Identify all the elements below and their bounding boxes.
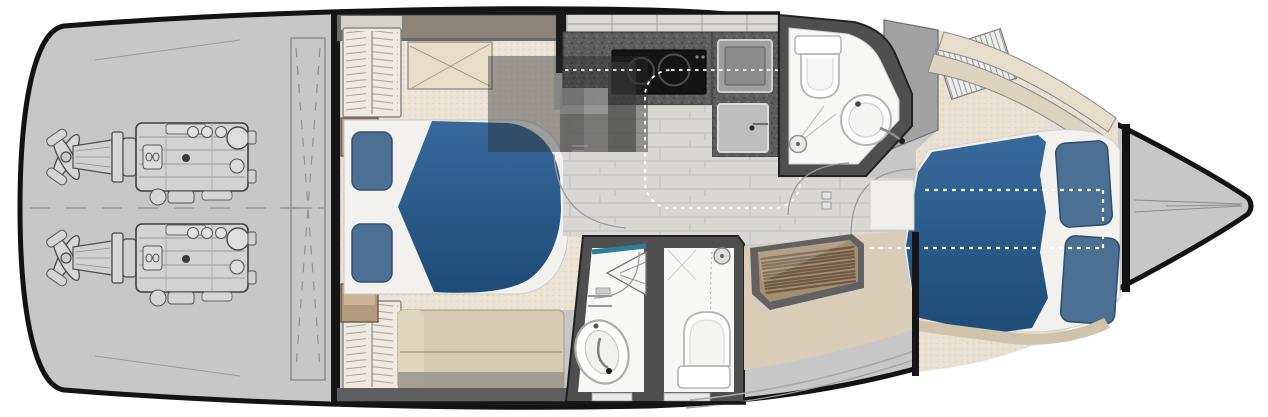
aft-cabin-brown-band — [402, 16, 560, 38]
galley-prep-sink — [718, 104, 768, 152]
washbasin-aft-drain — [606, 368, 612, 374]
aft-cabin-sofa — [398, 310, 564, 390]
toilet-aft — [678, 312, 730, 388]
galley-window-band — [567, 14, 778, 34]
aft-bulkhead — [331, 12, 340, 404]
forward-bulkhead-lower — [912, 232, 919, 376]
washbasin-aft-dot — [594, 324, 599, 329]
door-hardware-1 — [822, 192, 831, 199]
door-threshold — [870, 180, 914, 230]
bottom-window-slot-2 — [664, 393, 710, 401]
toilet-day-head — [795, 36, 841, 98]
wardrobe-top-louvered — [343, 28, 401, 117]
galley-sink — [718, 40, 772, 92]
aft-bed-pillow-top — [352, 132, 392, 190]
forward-bed-pillow-top — [1055, 140, 1113, 227]
bottom-window-slot-1 — [592, 393, 632, 401]
floor-plan-canvas — [0, 0, 1268, 417]
aft-bed-pillow-bottom — [352, 224, 392, 282]
storage-bench — [408, 42, 492, 89]
forward-bed-duvet — [906, 135, 1048, 334]
door-hardware-2 — [822, 202, 831, 209]
aft-bathroom — [566, 236, 744, 402]
